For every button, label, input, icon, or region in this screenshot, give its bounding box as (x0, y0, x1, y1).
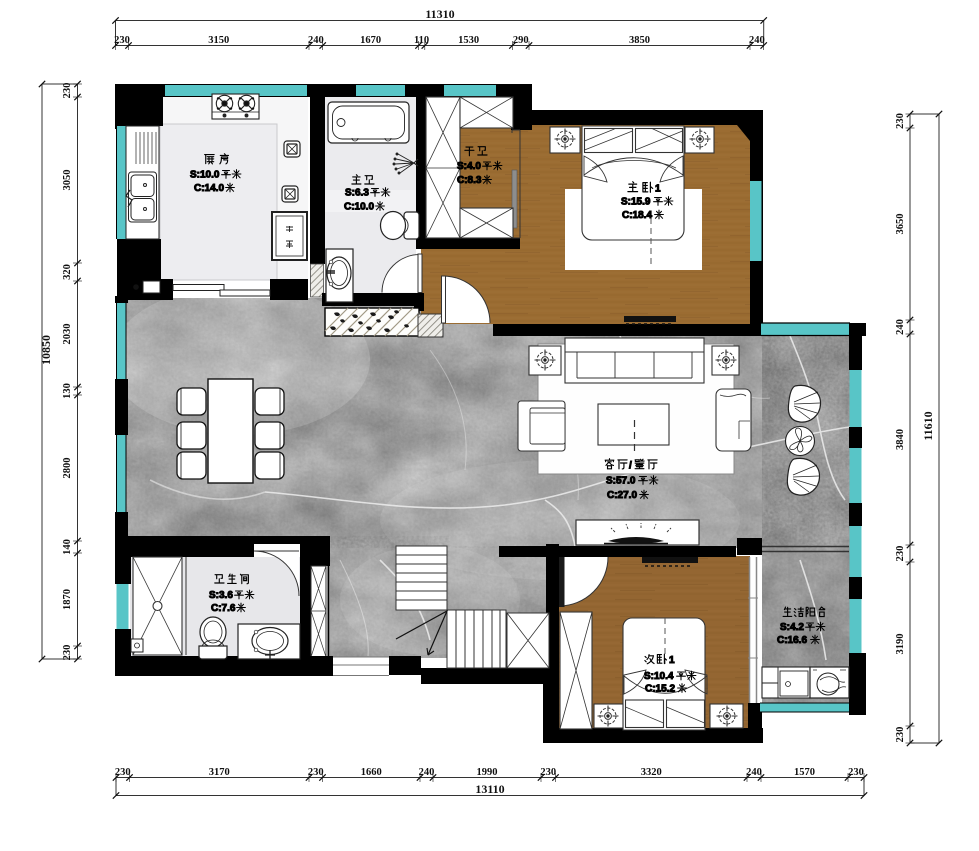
svg-text:3170: 3170 (209, 767, 230, 778)
svg-text:230: 230 (895, 546, 906, 562)
svg-text:2030: 2030 (62, 324, 73, 345)
svg-text:C:18.4: C:18.4 (622, 210, 652, 221)
svg-text:240: 240 (895, 319, 906, 335)
svg-text:130: 130 (62, 383, 73, 399)
svg-text:230: 230 (62, 83, 73, 99)
svg-text:230: 230 (115, 767, 131, 778)
svg-text:3850: 3850 (629, 35, 650, 46)
svg-text:S:10.4: S:10.4 (644, 671, 674, 682)
svg-text:1570: 1570 (794, 767, 815, 778)
svg-text:S:4.2: S:4.2 (780, 622, 804, 633)
svg-text:11310: 11310 (425, 7, 454, 21)
svg-text:3840: 3840 (895, 429, 906, 450)
svg-text:C:10.0: C:10.0 (344, 202, 374, 213)
svg-text:3650: 3650 (895, 214, 906, 235)
svg-text:110: 110 (414, 35, 429, 46)
svg-text:240: 240 (419, 767, 435, 778)
svg-text:C:14.0: C:14.0 (194, 183, 224, 194)
svg-text:S:15.9: S:15.9 (621, 197, 651, 208)
svg-text:1: 1 (669, 655, 675, 666)
svg-text:3190: 3190 (895, 634, 906, 655)
svg-text:C:8.3: C:8.3 (457, 175, 482, 186)
svg-text:S:3.6: S:3.6 (209, 590, 233, 601)
svg-text:140: 140 (62, 539, 73, 555)
svg-text:230: 230 (62, 645, 73, 661)
svg-text:240: 240 (308, 35, 324, 46)
svg-text:240: 240 (746, 767, 762, 778)
svg-text:230: 230 (895, 113, 906, 129)
svg-text:1530: 1530 (458, 35, 479, 46)
svg-text:290: 290 (513, 35, 529, 46)
svg-text:S:57.0: S:57.0 (606, 476, 636, 487)
svg-text:1: 1 (655, 184, 661, 195)
svg-text:3320: 3320 (641, 767, 662, 778)
svg-text:3050: 3050 (62, 170, 73, 191)
svg-text:230: 230 (895, 727, 906, 743)
svg-text:S:6.3: S:6.3 (345, 188, 369, 199)
svg-text:240: 240 (749, 35, 765, 46)
svg-text:S:10.0: S:10.0 (190, 170, 220, 181)
svg-text:1990: 1990 (477, 767, 498, 778)
svg-text:230: 230 (540, 767, 556, 778)
svg-text:10850: 10850 (39, 335, 53, 365)
svg-text:3150: 3150 (208, 35, 229, 46)
svg-text:/: / (629, 461, 632, 472)
svg-text:230: 230 (308, 767, 324, 778)
svg-text:1660: 1660 (361, 767, 382, 778)
svg-text:11610: 11610 (921, 411, 935, 440)
svg-text:230: 230 (848, 767, 864, 778)
svg-text:320: 320 (62, 264, 73, 280)
svg-text:C:27.0: C:27.0 (607, 490, 637, 501)
svg-text:230: 230 (114, 35, 130, 46)
svg-text:S:4.0: S:4.0 (457, 161, 481, 172)
svg-text:C:16.6: C:16.6 (777, 635, 807, 646)
svg-text:2800: 2800 (62, 458, 73, 479)
svg-text:1670: 1670 (360, 35, 381, 46)
svg-text:C:7.6: C:7.6 (211, 603, 236, 614)
svg-text:13110: 13110 (475, 782, 504, 796)
svg-text:1870: 1870 (62, 589, 73, 610)
svg-text:C:15.2: C:15.2 (645, 684, 675, 695)
